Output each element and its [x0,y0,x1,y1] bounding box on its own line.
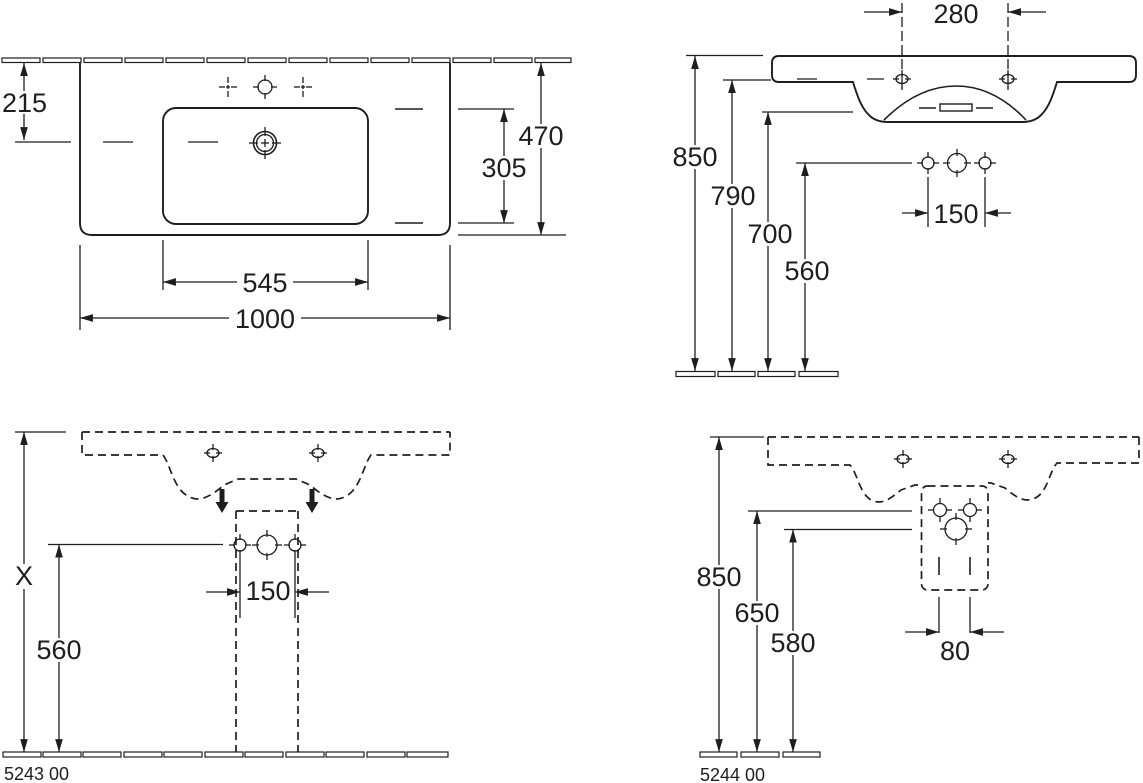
dim-580-label: 580 [770,628,815,658]
tap-hole-cross-left [219,77,237,97]
siphon-slots [939,557,970,575]
floor-line-pedestal [3,752,448,757]
dim-790-label: 790 [710,181,755,211]
front-view-siphon [695,437,1139,757]
tap-hole-circle-center [253,75,277,99]
floor-line-side [676,372,838,377]
dim-x [13,432,66,752]
dim-850-side-label: 850 [672,142,717,172]
dim-1000-label: 1000 [235,304,295,334]
basin-outline [80,63,450,235]
overflow-slot [919,104,993,111]
dim-215-label: 215 [2,88,47,118]
dim-850-front [695,437,764,752]
washbasin-dimension-drawing: 215 470 305 545 1000 280 850 790 700 560… [0,0,1143,783]
dim-150-front-label: 150 [245,576,290,606]
overflow-hole-left [204,444,222,462]
dim-850-side [671,56,763,372]
inner-bowl-outline [163,108,368,224]
mounting-arrows [216,489,319,513]
dim-80 [905,597,1004,633]
dim-305-label: 305 [481,153,526,183]
product-code-siphon: 5244 00 [700,765,765,783]
hidden-basin-outline-right [768,437,1139,590]
dim-x-label: X [15,561,33,591]
tap-hole-cross-right [294,77,312,97]
dim-80-label: 80 [940,636,970,666]
wall-line [2,58,571,63]
product-code-pedestal: 5243 00 [4,764,69,783]
dim-470-label: 470 [518,121,563,151]
ledge-marks [395,109,423,223]
dim-150-side-label: 150 [933,199,978,229]
dim-650-label: 650 [734,598,779,628]
tap-fixing-holes [229,530,306,560]
technical-drawing-page: 215 470 305 545 1000 280 850 790 700 560… [0,0,1143,783]
overflow-hole-right [309,444,327,462]
front-view-pedestal [3,432,450,757]
dim-650 [733,511,912,752]
wall-holes [917,149,996,177]
siphon-holes [928,498,982,545]
bowl-front-arc [884,86,1026,120]
hidden-basin-outline [82,432,450,499]
overflow-hole-left2 [894,450,912,468]
tap-hole-markers [219,75,312,99]
drain-marker [249,127,281,159]
floor-line-siphon [700,752,820,757]
dim-280-label: 280 [933,0,978,29]
dimension-labels: 215 470 305 545 1000 280 850 790 700 560… [2,0,979,783]
dim-560-front-label: 560 [36,635,81,665]
dim-700-label: 700 [747,219,792,249]
overflow-hole-right2 [999,450,1017,468]
dim-545-label: 545 [242,268,287,298]
dim-560-side-label: 560 [784,256,829,286]
dim-850-front-label: 850 [696,562,741,592]
